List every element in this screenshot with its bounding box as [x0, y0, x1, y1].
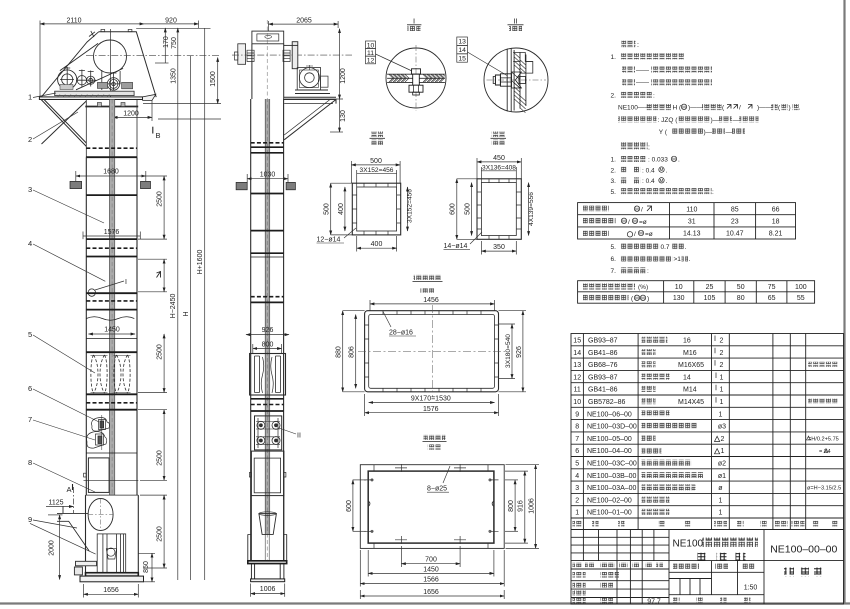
svg-text:3X136=408: 3X136=408 [482, 164, 516, 171]
svg-text:1:50: 1:50 [744, 585, 758, 592]
svg-text:1: 1 [718, 411, 722, 418]
svg-text:9: 9 [28, 515, 32, 524]
svg-text:130: 130 [340, 110, 347, 122]
svg-text:2500: 2500 [157, 344, 164, 360]
svg-text:ø: ø [718, 485, 723, 492]
svg-text:65: 65 [768, 295, 776, 302]
svg-text:11: 11 [574, 387, 581, 394]
svg-text::: : [653, 93, 655, 100]
svg-text:>1: >1 [674, 256, 682, 263]
svg-text:NE100–06–00: NE100–06–00 [587, 411, 632, 418]
svg-text:1: 1 [575, 510, 579, 517]
svg-text:M14X45: M14X45 [678, 399, 704, 406]
svg-text:15: 15 [573, 338, 581, 345]
svg-text:GB93–87: GB93–87 [588, 374, 618, 381]
svg-text:916: 916 [518, 500, 525, 512]
svg-text:H: H [183, 311, 190, 316]
svg-text:12: 12 [573, 374, 581, 381]
svg-text:1456: 1456 [423, 297, 439, 304]
svg-text:10: 10 [675, 284, 683, 291]
svg-text:1450: 1450 [104, 327, 120, 334]
svg-text:)——: )—— [688, 105, 704, 112]
svg-text:1500: 1500 [210, 71, 217, 87]
svg-text:ø3: ø3 [718, 424, 726, 431]
svg-text:.: . [799, 105, 801, 112]
svg-text:50: 50 [737, 284, 745, 291]
svg-text:)—: )— [704, 129, 713, 136]
svg-text:NE100–05–00: NE100–05–00 [587, 436, 632, 443]
svg-text:11: 11 [367, 50, 374, 57]
svg-text:1: 1 [718, 497, 722, 504]
svg-text:8: 8 [28, 458, 32, 467]
svg-text:2500: 2500 [157, 191, 164, 207]
svg-text:926: 926 [262, 327, 274, 334]
svg-text:800: 800 [262, 341, 274, 348]
svg-text:1680: 1680 [103, 169, 119, 176]
svg-text:2500: 2500 [157, 450, 164, 466]
svg-text:750: 750 [171, 37, 178, 49]
svg-text:II: II [297, 433, 301, 440]
svg-text:I: I [125, 279, 127, 286]
svg-text:170: 170 [163, 36, 170, 48]
svg-text:2110: 2110 [66, 17, 81, 24]
svg-text:85: 85 [731, 206, 739, 213]
svg-text:=ø: =ø [645, 231, 653, 238]
svg-text:4: 4 [575, 473, 579, 480]
svg-text:)—: )— [711, 117, 720, 124]
svg-text:5.: 5. [611, 244, 617, 251]
svg-text:1656: 1656 [103, 587, 119, 594]
svg-text:1350: 1350 [171, 68, 178, 84]
svg-text:=ø: =ø [639, 219, 647, 226]
svg-text:/: / [628, 219, 630, 226]
svg-text:1200: 1200 [123, 110, 139, 117]
svg-text:5.: 5. [611, 189, 617, 196]
svg-text:GB93–87: GB93–87 [588, 338, 618, 345]
svg-text:7.: 7. [611, 268, 617, 275]
svg-text:18: 18 [772, 218, 780, 225]
svg-text:10: 10 [367, 42, 375, 49]
svg-text::: : [647, 268, 649, 275]
svg-text:14−ø14: 14−ø14 [444, 243, 468, 250]
svg-text:ø=H−3.15/2.5: ø=H−3.15/2.5 [807, 486, 841, 492]
svg-text:2.: 2. [611, 93, 617, 100]
svg-text:7: 7 [575, 436, 579, 443]
svg-text:M14: M14 [683, 387, 697, 394]
svg-text:NE100–04–00: NE100–04–00 [587, 448, 632, 455]
svg-text:97.7: 97.7 [647, 599, 661, 606]
svg-text:1: 1 [721, 448, 725, 455]
svg-text:1030: 1030 [260, 172, 276, 179]
svg-text:4X139=556: 4X139=556 [528, 192, 535, 226]
svg-text:8: 8 [575, 424, 579, 431]
svg-text:1: 1 [28, 93, 32, 102]
svg-text:NE100–03A–00: NE100–03A–00 [587, 485, 637, 492]
svg-text:ø2: ø2 [718, 461, 726, 468]
svg-text:H−2450: H−2450 [170, 294, 177, 319]
svg-text:10: 10 [573, 399, 581, 406]
svg-text:NE100: NE100 [673, 539, 704, 550]
svg-text:9X170=1530: 9X170=1530 [411, 396, 451, 403]
svg-text:8.21: 8.21 [769, 231, 783, 238]
svg-text:6.: 6. [611, 256, 617, 263]
svg-text:.: . [666, 167, 668, 174]
svg-text:28−ø16: 28−ø16 [389, 330, 413, 337]
svg-text:14.13: 14.13 [683, 231, 701, 238]
svg-text:1125: 1125 [48, 500, 63, 507]
svg-text:14: 14 [458, 47, 466, 54]
svg-text:= X4: = X4 [819, 449, 831, 455]
svg-text:.: . [666, 178, 668, 185]
svg-text:2: 2 [721, 436, 725, 443]
svg-text:6: 6 [28, 384, 32, 393]
svg-text:3X180=540: 3X180=540 [505, 334, 512, 368]
svg-text:12: 12 [367, 58, 375, 65]
svg-text:13: 13 [458, 39, 466, 46]
svg-text:3: 3 [28, 185, 32, 194]
svg-text:2: 2 [28, 135, 32, 144]
svg-text:: JZQ (: : JZQ ( [658, 117, 679, 124]
svg-text:2500: 2500 [157, 526, 164, 542]
svg-text:6: 6 [575, 448, 579, 455]
svg-text:1.: 1. [611, 54, 617, 61]
svg-text:5: 5 [28, 330, 32, 339]
svg-text:II: II [513, 17, 517, 26]
svg-text:2: 2 [720, 338, 724, 345]
svg-text:.: . [685, 244, 687, 251]
svg-text:4: 4 [28, 239, 32, 248]
svg-text:2: 2 [575, 497, 579, 504]
svg-text:3.: 3. [611, 178, 617, 185]
svg-text:: 0.4: : 0.4 [642, 167, 655, 174]
svg-text:800: 800 [508, 500, 515, 512]
svg-text:M16X65: M16X65 [678, 362, 704, 369]
svg-text:14: 14 [573, 350, 581, 357]
svg-text:GB5782–86: GB5782–86 [588, 399, 625, 406]
svg-text:.: . [678, 157, 680, 164]
svg-text:600: 600 [450, 203, 457, 215]
svg-text:(%): (%) [638, 284, 648, 291]
svg-text:)——: )—— [757, 105, 773, 112]
svg-text:B: B [156, 131, 161, 140]
svg-text:926: 926 [516, 346, 523, 358]
svg-text:): ) [647, 296, 649, 303]
svg-text:10.47: 10.47 [726, 231, 744, 238]
svg-text:8−ø25: 8−ø25 [427, 486, 447, 493]
svg-text:15: 15 [458, 55, 466, 62]
svg-text:1576: 1576 [104, 229, 120, 236]
svg-text:2000: 2000 [49, 540, 56, 556]
svg-text:3X152=456: 3X152=456 [360, 167, 394, 174]
svg-text:NE100–03C–00: NE100–03C–00 [587, 461, 637, 468]
svg-text:3X152=456: 3X152=456 [407, 189, 414, 223]
svg-text:): ) [789, 105, 791, 112]
svg-text:GB68–76: GB68–76 [588, 362, 618, 369]
svg-text::: : [712, 189, 714, 196]
svg-text:Y (: Y ( [659, 129, 668, 136]
svg-text:2065: 2065 [296, 17, 312, 24]
svg-text:100: 100 [795, 284, 807, 291]
svg-text:12−ø14: 12−ø14 [317, 237, 341, 244]
svg-text:3: 3 [575, 485, 579, 492]
svg-text:400: 400 [338, 203, 345, 215]
svg-text:806: 806 [349, 346, 356, 358]
svg-text:55: 55 [797, 295, 805, 302]
svg-text:25: 25 [706, 284, 714, 291]
svg-text:1: 1 [718, 510, 722, 517]
svg-text:450: 450 [493, 155, 505, 162]
svg-text:=H/0.2+5.75: =H/0.2+5.75 [808, 437, 839, 443]
svg-text:1: 1 [720, 374, 724, 381]
svg-text:13: 13 [573, 362, 581, 369]
svg-text:500: 500 [370, 158, 382, 165]
svg-text:400: 400 [371, 241, 383, 248]
svg-text:600: 600 [346, 500, 353, 512]
svg-text:16: 16 [683, 338, 691, 345]
svg-text:/: / [641, 207, 643, 214]
svg-text:14: 14 [683, 374, 691, 381]
svg-text:—: — [726, 129, 733, 136]
svg-text:75: 75 [768, 284, 776, 291]
svg-text:1566: 1566 [423, 577, 439, 584]
svg-text:1: 1 [720, 387, 724, 394]
svg-text:66: 66 [772, 206, 780, 213]
svg-text:NE100–01–00: NE100–01–00 [587, 510, 632, 517]
svg-text:110: 110 [686, 206, 697, 213]
svg-text:130: 130 [673, 295, 685, 302]
svg-text:850: 850 [143, 561, 150, 573]
svg-text:1450: 1450 [423, 566, 439, 573]
svg-text::: : [648, 144, 650, 151]
svg-text:1656: 1656 [423, 589, 439, 596]
svg-text:700: 700 [425, 557, 437, 564]
svg-text:—: — [733, 117, 740, 124]
svg-text:7: 7 [28, 415, 32, 424]
svg-text:/: / [634, 231, 636, 238]
svg-text:A: A [67, 485, 72, 494]
svg-text:105: 105 [704, 295, 716, 302]
svg-text:NE100–00–00: NE100–00–00 [770, 544, 837, 556]
svg-text:5: 5 [575, 461, 579, 468]
svg-text:1006: 1006 [260, 586, 276, 593]
svg-text:GB41–86: GB41–86 [588, 350, 618, 357]
svg-text:31: 31 [688, 218, 696, 225]
svg-text:920: 920 [165, 17, 177, 24]
svg-text:H (: H ( [673, 105, 683, 112]
svg-text:GB41–86: GB41–86 [588, 387, 618, 394]
svg-text:1576: 1576 [423, 406, 439, 413]
svg-text:M16: M16 [683, 350, 697, 357]
svg-text:——: —— [636, 67, 650, 74]
svg-text:500: 500 [465, 203, 472, 215]
svg-text:NE100–03D–00: NE100–03D–00 [587, 424, 637, 431]
svg-text:2: 2 [720, 350, 724, 357]
svg-text:500: 500 [324, 203, 331, 215]
svg-text:1006: 1006 [529, 498, 536, 514]
svg-text:1: 1 [720, 399, 724, 406]
svg-text:ø1: ø1 [718, 473, 726, 480]
svg-text:/: / [739, 105, 741, 112]
svg-text:2.: 2. [611, 167, 617, 174]
svg-text:350: 350 [493, 244, 505, 251]
svg-text:9: 9 [575, 411, 579, 418]
svg-text::: : [637, 42, 639, 49]
svg-text:.: . [689, 256, 691, 263]
svg-text:2: 2 [720, 362, 724, 369]
svg-text:880: 880 [336, 346, 343, 358]
svg-text:: 0.033: : 0.033 [648, 157, 668, 164]
svg-text:1200: 1200 [340, 68, 347, 84]
svg-text:NE100–02–00: NE100–02–00 [587, 497, 632, 504]
svg-text:——: —— [636, 80, 650, 87]
svg-text:NE100–03B–00: NE100–03B–00 [587, 473, 637, 480]
svg-text:: 0.4: : 0.4 [642, 178, 655, 185]
svg-text:1.: 1. [611, 157, 617, 164]
svg-text:H+1600: H+1600 [197, 250, 204, 275]
svg-text:I: I [413, 17, 415, 26]
svg-text:0.7: 0.7 [661, 244, 670, 251]
svg-text:23: 23 [731, 218, 739, 225]
svg-text:80: 80 [737, 295, 745, 302]
